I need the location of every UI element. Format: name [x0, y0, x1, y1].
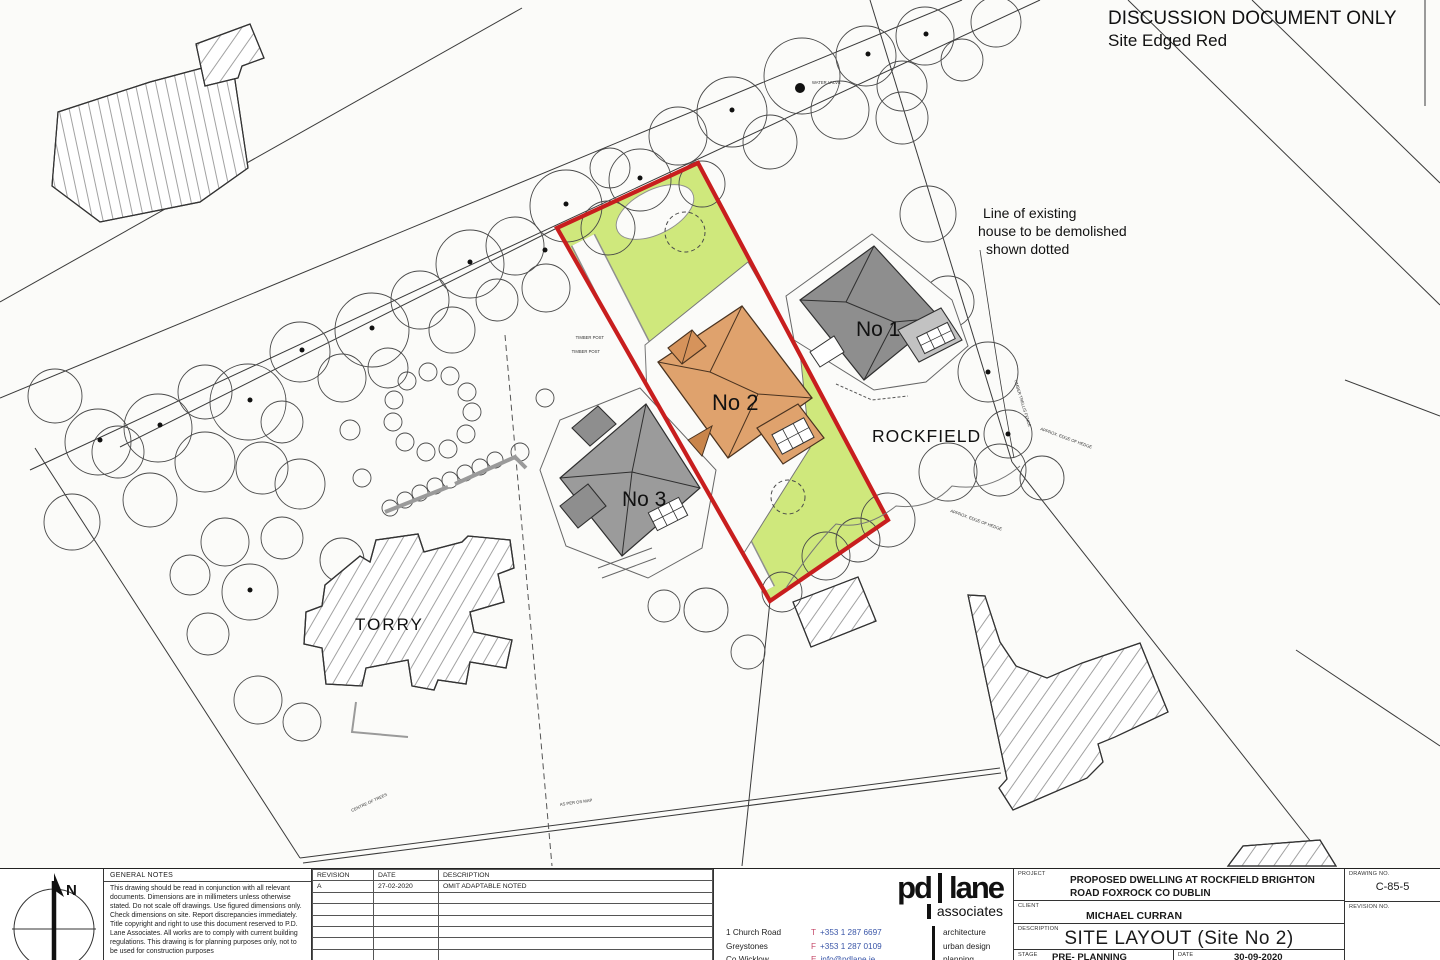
- firm-address-line1: 1 Church Road: [726, 926, 798, 939]
- firm-service-2: urban design: [943, 940, 990, 953]
- demolish-note-line3: shown dotted: [986, 241, 1069, 257]
- water-valve-label: WATER VALVE: [812, 80, 841, 85]
- timber-post-label-2: TIMBER POST: [572, 349, 601, 354]
- site-plan-drawing: DISCUSSION DOCUMENT ONLY Site Edged Red …: [0, 0, 1440, 868]
- logo-pd: pd: [897, 872, 931, 903]
- stage-date-row: STAGE PRE- PLANNING DATE 30-09-2020: [1014, 950, 1344, 960]
- revision-header-row: REVISION DATE DESCRIPTION: [313, 870, 713, 881]
- firm-info: 1 Church Road Greystones Co Wicklow T+35…: [726, 926, 1003, 960]
- revision-col-header: REVISION: [313, 870, 374, 881]
- doc-note-label: Site Edged Red: [1108, 31, 1227, 50]
- client-value: MICHAEL CURRAN: [1014, 901, 1344, 922]
- north-arrow: N: [0, 869, 104, 960]
- description-value: SITE LAYOUT (Site No 2): [1014, 924, 1344, 950]
- firm-services: architecture urban design planning: [932, 926, 990, 960]
- description-col-header: DESCRIPTION: [439, 870, 713, 881]
- description-label: DESCRIPTION: [1018, 926, 1058, 932]
- demolish-note-line1: Line of existing: [983, 205, 1076, 221]
- logo-associates: associates: [927, 904, 1003, 919]
- revision-row-empty: [313, 915, 713, 926]
- description-row: DESCRIPTION SITE LAYOUT (Site No 2): [1014, 924, 1344, 950]
- firm-fax: F+353 1 287 0109: [811, 940, 919, 953]
- project-label: PROJECT: [1018, 871, 1046, 877]
- date-value: 30-09-2020: [1174, 950, 1344, 960]
- general-notes-cell: GENERAL NOTES This drawing should be rea…: [104, 869, 312, 960]
- date-cell: DATE 30-09-2020: [1174, 950, 1344, 960]
- house-no1-label: No 1: [856, 318, 900, 341]
- demolish-note-line2: house to be demolished: [978, 223, 1127, 239]
- project-row: PROJECT PROPOSED DWELLING AT ROCKFIELD B…: [1014, 869, 1344, 901]
- house-no3-label: No 3: [622, 488, 666, 511]
- revision-row: A 27-02-2020 OMIT ADAPTABLE NOTED: [313, 881, 713, 892]
- revision-table-cell: REVISION DATE DESCRIPTION A 27-02-2020 O…: [312, 869, 714, 960]
- firm-address-line2: Greystones: [726, 940, 798, 953]
- revision-value: A: [313, 881, 374, 892]
- project-info-cell: PROJECT PROPOSED DWELLING AT ROCKFIELD B…: [1014, 869, 1440, 960]
- revision-table: REVISION DATE DESCRIPTION A 27-02-2020 O…: [312, 869, 713, 960]
- revision-row-empty: [313, 949, 713, 960]
- north-letter: N: [66, 882, 77, 899]
- date-col-header: DATE: [374, 870, 439, 881]
- title-block: N GENERAL NOTES This drawing should be r…: [0, 868, 1440, 960]
- drawing-no-cell: DRAWING NO. C-85-5: [1345, 869, 1440, 902]
- torry-label: TORRY: [355, 615, 424, 634]
- firm-contacts: T+353 1 287 6697 F+353 1 287 0109 Einfo@…: [811, 926, 919, 960]
- firm-service-1: architecture: [943, 926, 990, 939]
- firm-phone: T+353 1 287 6697: [811, 926, 919, 939]
- firm-service-3: planning: [943, 953, 990, 960]
- revision-row-empty: [313, 938, 713, 949]
- client-row: CLIENT MICHAEL CURRAN: [1014, 901, 1344, 924]
- logo-lane: lane: [949, 872, 1003, 903]
- revision-description: OMIT ADAPTABLE NOTED: [439, 881, 713, 892]
- general-notes-title: GENERAL NOTES: [104, 869, 311, 882]
- revision-row-empty: [313, 904, 713, 915]
- date-label: DATE: [1178, 952, 1193, 958]
- project-value: PROPOSED DWELLING AT ROCKFIELD BRIGHTON …: [1014, 869, 1344, 900]
- site-plan-page: DISCUSSION DOCUMENT ONLY Site Edged Red …: [0, 0, 1440, 960]
- revision-date: 27-02-2020: [374, 881, 439, 892]
- firm-address: 1 Church Road Greystones Co Wicklow: [726, 926, 798, 960]
- house-no2-label: No 2: [712, 390, 758, 415]
- firm-email: Einfo@pdlane.ie: [811, 953, 919, 960]
- timber-post-label-1: TIMBER POST: [576, 335, 605, 340]
- stage-label: STAGE: [1018, 952, 1038, 958]
- revision-no-label: REVISION NO.: [1349, 904, 1390, 910]
- general-notes-body: This drawing should be read in conjuncti…: [104, 882, 311, 960]
- rockfield-label: ROCKFIELD: [872, 426, 981, 446]
- revision-row-empty: [313, 892, 713, 903]
- revision-row-empty: [313, 926, 713, 937]
- client-label: CLIENT: [1018, 903, 1039, 909]
- firm-address-line3: Co Wicklow: [726, 953, 798, 960]
- firm-cell: pd lane associates 1 Church Road Greysto…: [714, 869, 1014, 960]
- firm-logo: pd lane: [726, 872, 1003, 903]
- doc-status-label: DISCUSSION DOCUMENT ONLY: [1108, 8, 1397, 29]
- north-arrow-cell: N: [0, 869, 104, 960]
- revision-no-cell: REVISION NO.: [1345, 902, 1440, 960]
- logo-bar-icon: [938, 873, 942, 903]
- stage-cell: STAGE PRE- PLANNING: [1014, 950, 1174, 960]
- drawing-no-label: DRAWING NO.: [1349, 871, 1390, 877]
